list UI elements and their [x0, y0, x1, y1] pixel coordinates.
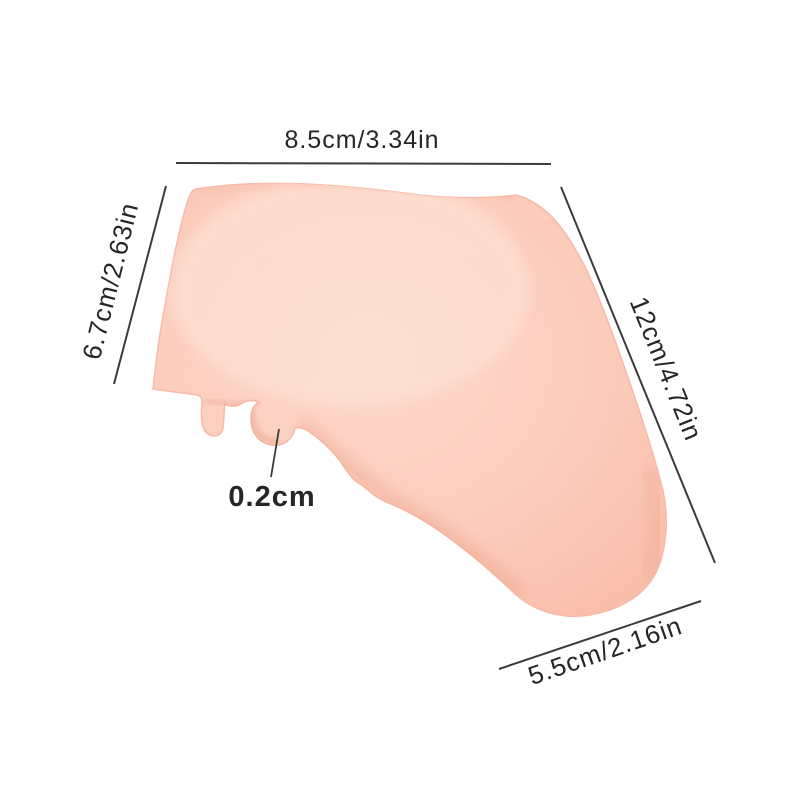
product-size-diagram: 8.5cm/3.34in 6.7cm/2.63in 12cm/4.72in 0.… — [0, 0, 800, 800]
dimension-line-top-width — [176, 163, 551, 164]
dimension-label-thickness: 0.2cm — [228, 481, 315, 513]
dimension-label-bottom-width: 5.5cm/2.16in — [524, 610, 686, 691]
dimension-label-top-width: 8.5cm/3.34in — [284, 126, 439, 154]
size-diagram-canvas: 8.5cm/3.34in 6.7cm/2.63in 12cm/4.72in 0.… — [0, 0, 800, 800]
highlight-sheen — [170, 175, 530, 405]
dimension-label-left-height: 6.7cm/2.63in — [76, 199, 144, 362]
